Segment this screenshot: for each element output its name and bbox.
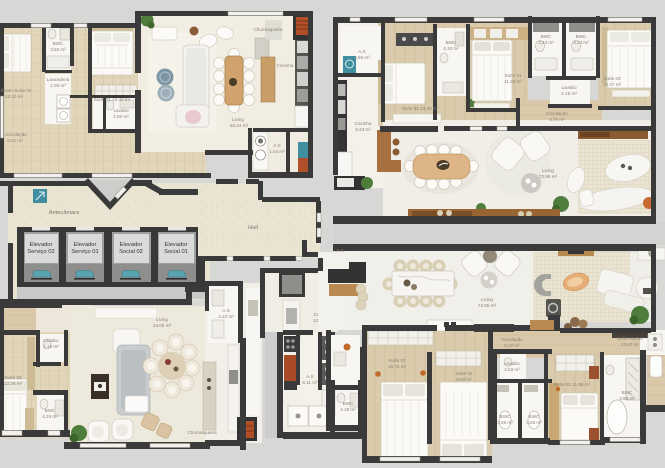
svg-text:Depto Suíte 02: Depto Suíte 02 — [1, 88, 32, 93]
svg-text:Living: Living — [481, 297, 493, 302]
svg-text:Circulação: Circulação — [546, 111, 568, 116]
svg-text:9.33 m²: 9.33 m² — [355, 127, 371, 132]
svg-text:Elevador: Elevador — [74, 242, 97, 248]
svg-text:4.22 m²: 4.22 m² — [218, 314, 234, 319]
svg-text:13.29 m²: 13.29 m² — [4, 381, 23, 386]
svg-text:4.95 m²: 4.95 m² — [354, 55, 370, 60]
svg-text:BWC: BWC — [529, 414, 540, 419]
svg-text:1.16 m²: 1.16 m² — [43, 344, 59, 349]
svg-text:Living: Living — [542, 168, 554, 173]
svg-text:72.95 m²: 72.95 m² — [478, 303, 497, 308]
svg-text:Suíte 01: Suíte 01 — [504, 73, 522, 78]
svg-text:BWC: BWC — [53, 41, 64, 46]
svg-text:Living: Living — [156, 317, 168, 322]
svg-text:Cozinha: Cozinha — [277, 63, 294, 68]
svg-text:Hall: Hall — [248, 225, 258, 231]
svg-text:3.75 m²: 3.75 m² — [549, 117, 565, 122]
svg-text:Lavabo: Lavabo — [561, 85, 577, 90]
svg-text:A.S: A.S — [306, 374, 313, 379]
svg-text:34.06 m²: 34.06 m² — [153, 323, 172, 328]
svg-text:4.29 m²: 4.29 m² — [42, 414, 58, 419]
svg-text:Suíte 03: Suíte 03 — [388, 358, 406, 363]
svg-text:A.S: A.S — [222, 308, 229, 313]
svg-text:Suíte 02: Suíte 02 — [4, 375, 22, 380]
svg-text:8.01 m²: 8.01 m² — [7, 138, 23, 143]
svg-text:Lavabo: Lavabo — [113, 108, 129, 113]
svg-text:15.75 m²: 15.75 m² — [388, 364, 407, 369]
svg-text:Cozinha: Cozinha — [355, 121, 372, 126]
svg-text:2.06 m²: 2.06 m² — [50, 83, 66, 88]
svg-text:BWC: BWC — [446, 40, 457, 45]
svg-text:Serviço 02: Serviço 02 — [27, 249, 54, 255]
svg-text:Suíte 01 13.40 m²: Suíte 01 13.40 m² — [94, 97, 131, 102]
svg-text:11.32 m²: 11.32 m² — [504, 79, 522, 84]
svg-text:Social 01: Social 01 — [164, 249, 188, 255]
svg-text:Lavanderia: Lavanderia — [47, 77, 70, 82]
svg-text:1.54 m²: 1.54 m² — [269, 149, 285, 154]
svg-text:3.23 m²: 3.23 m² — [538, 40, 554, 45]
svg-text:1.60 m²: 1.60 m² — [113, 114, 129, 119]
svg-text:22.67 m²: 22.67 m² — [621, 342, 640, 347]
svg-text:Social 02: Social 02 — [119, 249, 143, 255]
svg-text:Elevador: Elevador — [30, 242, 53, 248]
svg-text:Circulação: Circulação — [5, 132, 27, 137]
svg-text:BWC: BWC — [45, 408, 56, 413]
svg-text:3.56 m²: 3.56 m² — [526, 420, 542, 425]
svg-text:Suíte 02 13.40 m²: Suíte 02 13.40 m² — [402, 106, 439, 111]
svg-text:Antecâmara: Antecâmara — [49, 210, 80, 216]
svg-text:2.15 m²: 2.15 m² — [561, 91, 577, 96]
svg-text:4.18 m²: 4.18 m² — [340, 407, 356, 412]
svg-text:2.03 m²: 2.03 m² — [504, 367, 520, 372]
svg-text:4.98 m²: 4.98 m² — [619, 396, 635, 401]
svg-text:Suíte Master: Suíte Master — [617, 336, 644, 341]
svg-text:72.96 m²: 72.96 m² — [539, 174, 558, 179]
svg-text:50.24 m²: 50.24 m² — [230, 123, 249, 128]
svg-text:A.S: A.S — [358, 49, 365, 54]
svg-text:15.47 m²: 15.47 m² — [603, 82, 622, 87]
svg-text:Serviço 01: Serviço 01 — [71, 249, 98, 255]
svg-text:4.10 m²: 4.10 m² — [443, 46, 459, 51]
svg-text:A.S: A.S — [336, 248, 343, 253]
svg-text:Churrasqueira: Churrasqueira — [253, 27, 283, 32]
svg-text:BWC: BWC — [541, 34, 552, 39]
svg-text:3.23 m²: 3.23 m² — [573, 40, 589, 45]
svg-text:Living: Living — [232, 117, 244, 122]
svg-text:Suíte 02: Suíte 02 — [455, 371, 473, 376]
svg-text:Circulação: Circulação — [501, 337, 523, 342]
svg-text:3.56 m²: 3.56 m² — [497, 420, 513, 425]
svg-text:BWC: BWC — [576, 34, 587, 39]
svg-text:6.11 m²: 6.11 m² — [302, 380, 318, 385]
svg-text:12.10 m²: 12.10 m² — [5, 94, 24, 99]
svg-text:6.27 m²: 6.27 m² — [504, 343, 520, 348]
svg-text:8.80 m²: 8.80 m² — [456, 377, 472, 382]
svg-text:Lavabo: Lavabo — [43, 338, 59, 343]
svg-text:BWC: BWC — [500, 414, 511, 419]
svg-text:Elevador: Elevador — [120, 242, 143, 248]
svg-text:BWC: BWC — [343, 401, 354, 406]
svg-text:BWC: BWC — [622, 390, 633, 395]
svg-text:3.58 m²: 3.58 m² — [50, 47, 66, 52]
svg-text:Churrasqueira: Churrasqueira — [187, 430, 217, 435]
svg-text:A.S: A.S — [273, 143, 280, 148]
svg-text:Elevador: Elevador — [165, 242, 188, 248]
svg-text:Suíte 03: Suíte 03 — [603, 76, 621, 81]
svg-text:Suíte 01 11.85 m²: Suíte 01 11.85 m² — [554, 382, 591, 387]
svg-text:Lavabo: Lavabo — [504, 361, 520, 366]
